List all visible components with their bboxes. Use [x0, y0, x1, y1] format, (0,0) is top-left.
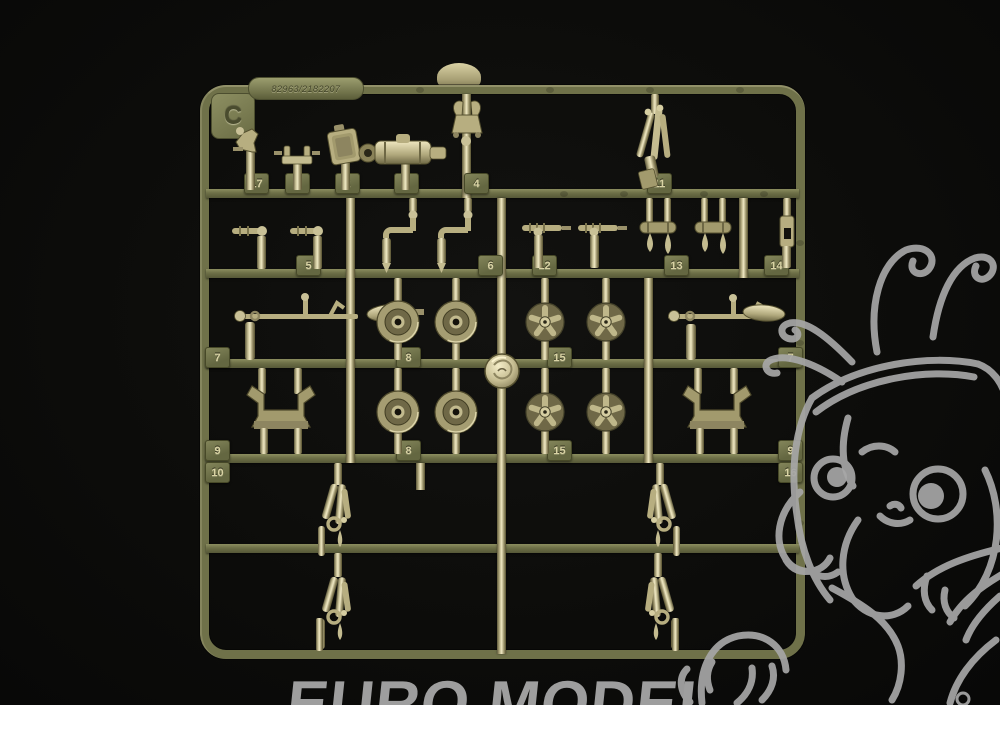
- bottom-white-strip: [0, 705, 1000, 750]
- screenshot: C 82963/2182207 17 1 2 3 4 11 5 6 12 13 …: [0, 0, 1000, 750]
- photo-area: C 82963/2182207 17 1 2 3 4 11 5 6 12 13 …: [0, 0, 1000, 705]
- watermark-text: EURO MODEL: [283, 668, 721, 705]
- dragon-watermark: [0, 0, 1000, 705]
